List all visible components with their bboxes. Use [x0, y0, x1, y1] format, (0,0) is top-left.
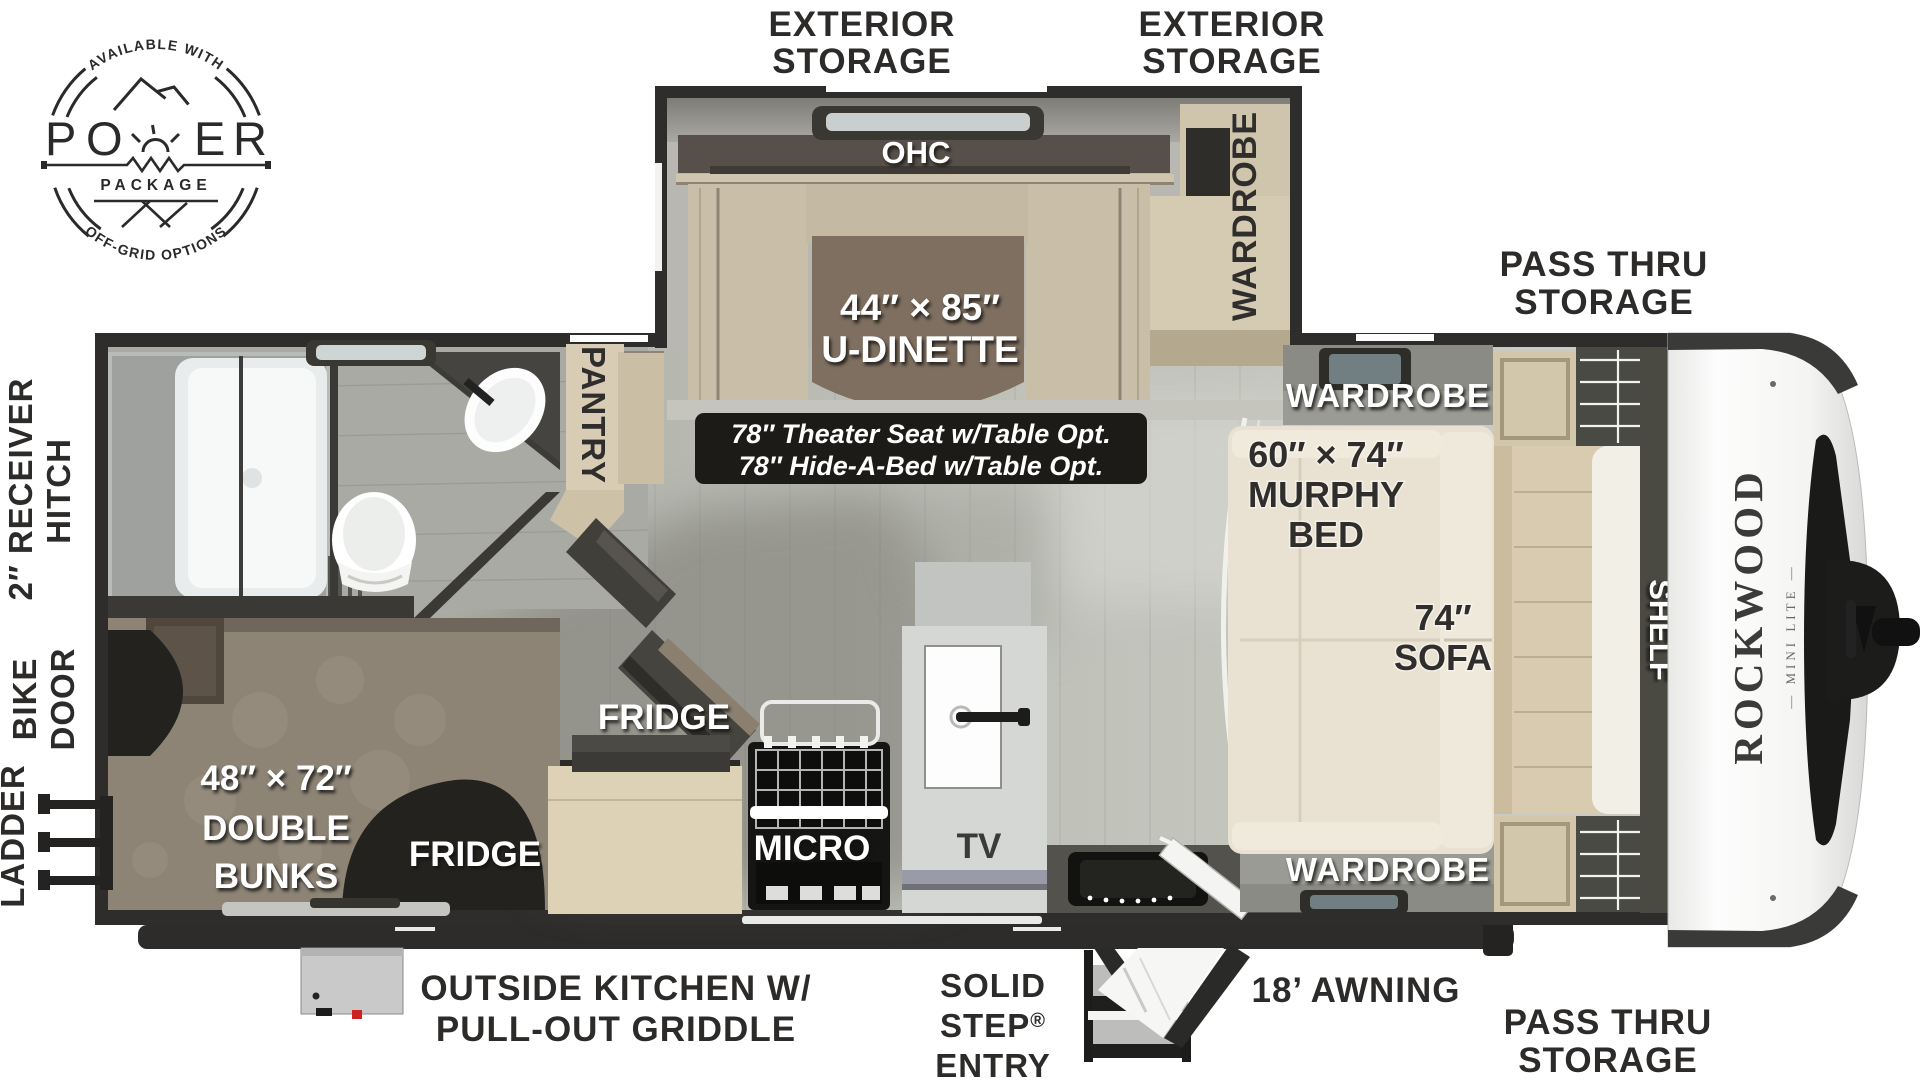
svg-text:STORAGE: STORAGE — [1142, 42, 1321, 81]
svg-text:OHC: OHC — [882, 135, 951, 170]
svg-text:60″ × 74″: 60″ × 74″ — [1248, 434, 1404, 475]
svg-text:DOOR: DOOR — [44, 648, 81, 751]
svg-text:FRIDGE: FRIDGE — [409, 835, 541, 874]
svg-text:STEP®: STEP® — [940, 1007, 1046, 1044]
svg-text:SOLID: SOLID — [940, 967, 1046, 1004]
svg-text:WARDROBE: WARDROBE — [1286, 377, 1490, 414]
svg-text:48″ × 72″: 48″ × 72″ — [200, 759, 352, 798]
svg-text:44″ × 85″: 44″ × 85″ — [840, 287, 1000, 328]
svg-text:ENTRY: ENTRY — [935, 1047, 1051, 1084]
svg-text:PANTRY: PANTRY — [575, 346, 612, 484]
svg-text:WARDROBE: WARDROBE — [1286, 851, 1490, 888]
svg-text:R: R — [233, 112, 267, 165]
svg-text:18’ AWNING: 18’ AWNING — [1251, 971, 1460, 1010]
svg-text:STORAGE: STORAGE — [772, 42, 951, 81]
svg-text:TV: TV — [957, 827, 1002, 866]
svg-text:MURPHY: MURPHY — [1248, 474, 1404, 515]
svg-text:U-DINETTE: U-DINETTE — [821, 329, 1018, 370]
svg-text:P: P — [45, 112, 76, 165]
svg-text:MICRO: MICRO — [754, 829, 871, 868]
svg-text:FRIDGE: FRIDGE — [598, 698, 730, 737]
svg-text:EXTERIOR: EXTERIOR — [1139, 5, 1326, 44]
svg-text:78″ Hide-A-Bed w/Table Opt.: 78″ Hide-A-Bed w/Table Opt. — [739, 451, 1103, 481]
svg-text:74″: 74″ — [1414, 597, 1471, 638]
svg-text:O: O — [86, 112, 123, 165]
svg-text:PULL-OUT GRIDDLE: PULL-OUT GRIDDLE — [436, 1010, 796, 1049]
svg-text:SOFA: SOFA — [1394, 637, 1492, 678]
svg-text:PACKAGE: PACKAGE — [100, 177, 211, 194]
svg-text:OUTSIDE KITCHEN W/: OUTSIDE KITCHEN W/ — [420, 969, 811, 1008]
svg-text:DOUBLE: DOUBLE — [202, 809, 350, 848]
svg-text:BUNKS: BUNKS — [214, 857, 338, 896]
svg-text:BIKE: BIKE — [6, 658, 43, 741]
svg-text:ROCKWOOD: ROCKWOOD — [1725, 467, 1771, 764]
svg-text:PASS THRU: PASS THRU — [1504, 1003, 1713, 1042]
svg-text:STORAGE: STORAGE — [1518, 1041, 1697, 1080]
svg-text:PASS THRU: PASS THRU — [1500, 245, 1709, 284]
svg-text:EXTERIOR: EXTERIOR — [769, 5, 956, 44]
svg-text:— MINI LITE —: — MINI LITE — — [1783, 563, 1798, 710]
svg-text:BED: BED — [1288, 514, 1364, 555]
svg-text:E: E — [194, 112, 225, 165]
svg-text:2″ RECEIVER: 2″ RECEIVER — [2, 377, 39, 600]
svg-text:LADDER: LADDER — [0, 764, 31, 908]
svg-text:WARDROBE: WARDROBE — [1226, 111, 1264, 321]
svg-text:78″ Theater Seat w/Table Opt.: 78″ Theater Seat w/Table Opt. — [731, 419, 1111, 449]
svg-text:STORAGE: STORAGE — [1514, 283, 1693, 322]
svg-text:HITCH: HITCH — [40, 438, 77, 544]
